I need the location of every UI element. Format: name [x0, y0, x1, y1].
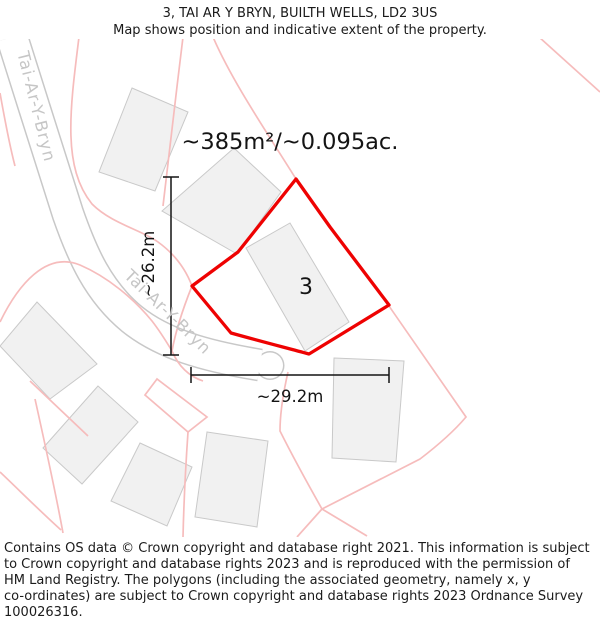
copyright-line: 100026316.: [4, 605, 596, 621]
property-map: Tai-Ar-Y-Bryn Tai-Ar-Y-Bryn ~385m²/~0.09…: [0, 39, 600, 537]
address-title: 3, TAI AR Y BRYN, BUILTH WELLS, LD2 3US: [0, 5, 600, 22]
map-caption: Map shows position and indicative extent…: [0, 22, 600, 39]
plot-number-label: 3: [299, 275, 313, 300]
copyright-line: Contains OS data © Crown copyright and d…: [4, 541, 596, 557]
horizontal-dimension-label: ~29.2m: [257, 387, 324, 406]
building: [195, 432, 268, 527]
copyright-line: co-ordinates) are subject to Crown copyr…: [4, 589, 596, 605]
area-label: ~385m²/~0.095ac.: [182, 129, 399, 155]
building: [332, 358, 404, 462]
copyright-text: Contains OS data © Crown copyright and d…: [0, 537, 600, 621]
copyright-line: to Crown copyright and database rights 2…: [4, 557, 596, 573]
copyright-line: HM Land Registry. The polygons (includin…: [4, 573, 596, 589]
title-block: 3, TAI AR Y BRYN, BUILTH WELLS, LD2 3US …: [0, 0, 600, 39]
vertical-dimension-label: ~26.2m: [139, 231, 158, 298]
map-container: Tai-Ar-Y-Bryn Tai-Ar-Y-Bryn ~385m²/~0.09…: [0, 39, 600, 537]
